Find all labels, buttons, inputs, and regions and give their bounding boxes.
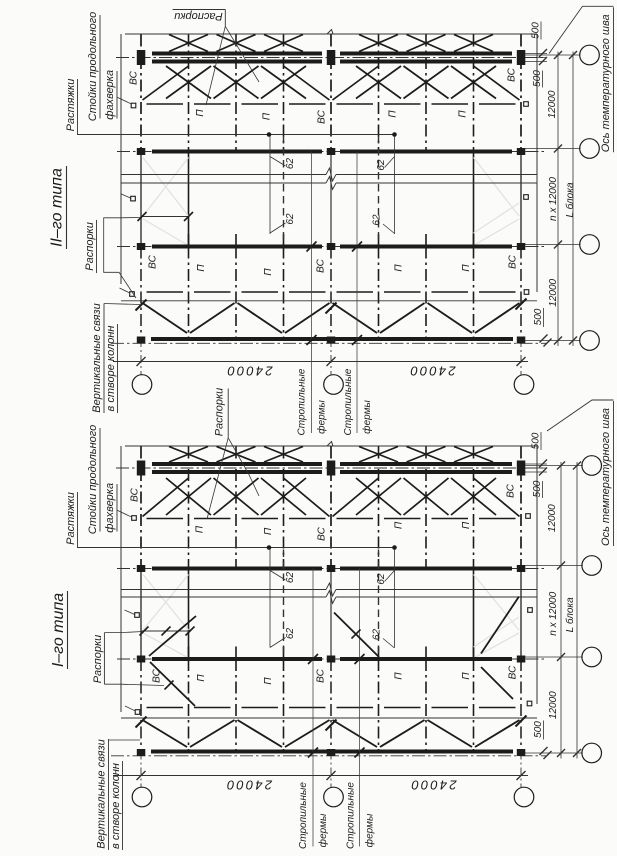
svg-text:ВС: ВС [506,67,517,81]
svg-text:ВС: ВС [316,526,327,540]
svg-text:62: 62 [371,214,382,226]
svg-text:Ось температурного шва: Ось температурного шва [600,14,612,152]
svg-text:Распорки: Распорки [174,10,223,22]
svg-text:ВС: ВС [316,109,327,123]
svg-text:24000: 24000 [225,364,273,379]
svg-text:12000: 12000 [547,504,558,532]
svg-text:Стойки продольного: Стойки продольного [87,12,99,121]
svg-text:Стойки продольного: Стойки продольного [87,425,99,534]
svg-text:Растяжки: Растяжки [65,79,77,132]
svg-text:фермы: фермы [317,813,329,847]
svg-text:62: 62 [371,629,382,641]
svg-text:12000: 12000 [548,278,559,306]
svg-text:П: П [261,112,272,120]
svg-text:фахверка: фахверка [104,483,116,533]
svg-text:500: 500 [533,308,544,325]
svg-text:Стропильные: Стропильные [296,368,307,435]
svg-text:n x 12000: n x 12000 [548,591,559,635]
svg-text:в створе колонн: в створе колонн [105,326,117,412]
svg-text:П: П [461,264,472,272]
svg-text:L блока: L блока [564,182,576,217]
svg-text:П: П [393,264,404,272]
svg-text:ВС: ВС [507,254,518,268]
svg-text:Стропильные: Стропильные [345,782,356,849]
svg-text:ВС: ВС [505,483,516,497]
svg-text:62: 62 [376,159,387,171]
svg-text:500: 500 [533,721,544,738]
svg-text:Распорки: Распорки [214,388,226,437]
svg-text:Распорки: Распорки [92,635,104,684]
svg-text:ВС: ВС [507,665,518,679]
svg-text:500: 500 [530,432,541,449]
svg-text:62: 62 [285,158,296,170]
svg-text:Растяжки: Растяжки [65,492,77,545]
svg-text:фермы: фермы [363,813,375,847]
svg-text:24000: 24000 [409,778,457,793]
svg-text:П: П [196,264,207,272]
svg-text:П: П [194,525,205,533]
svg-text:ВС: ВС [315,258,326,272]
svg-text:ВС: ВС [315,668,326,682]
svg-text:II–го типа: II–го типа [48,168,65,247]
svg-text:500: 500 [532,480,543,497]
svg-text:500: 500 [530,22,541,39]
svg-text:Вертикальные связи: Вертикальные связи [91,303,103,412]
svg-text:П: П [461,672,472,680]
svg-text:62: 62 [285,213,296,225]
svg-text:Ось температурного шва: Ось температурного шва [600,408,612,546]
svg-text:Вертикальные связи: Вертикальные связи [96,739,108,848]
svg-text:62: 62 [285,572,296,584]
svg-text:12000: 12000 [548,691,559,719]
svg-text:62: 62 [285,628,296,640]
svg-text:П: П [263,268,274,276]
svg-text:ВС: ВС [129,487,140,501]
svg-text:12000: 12000 [547,90,558,118]
svg-text:П: П [196,674,207,682]
svg-text:Стропильные: Стропильные [298,782,309,849]
svg-text:24000: 24000 [225,778,273,793]
svg-text:62: 62 [376,573,387,585]
svg-text:L блока: L блока [564,597,576,632]
svg-text:фахверка: фахверка [104,70,116,120]
svg-text:фермы: фермы [315,400,327,434]
svg-text:Стропильные: Стропильные [343,368,354,435]
svg-text:ВС: ВС [151,668,162,682]
svg-text:П: П [387,110,398,118]
svg-text:П: П [263,527,274,535]
svg-text:500: 500 [532,70,543,87]
svg-text:фермы: фермы [361,400,373,434]
svg-text:в створе колонн: в створе колонн [110,763,122,849]
svg-text:ВС: ВС [147,254,158,268]
svg-text:П: П [393,672,404,680]
svg-text:П: П [461,521,472,529]
svg-text:П: П [263,677,274,685]
svg-text:П: П [195,109,206,117]
svg-text:I–го типа: I–го типа [50,593,67,667]
svg-text:24000: 24000 [408,364,456,379]
svg-text:n x 12000: n x 12000 [548,177,559,221]
svg-text:Распорки: Распорки [84,222,96,271]
svg-text:П: П [393,521,404,529]
svg-text:ВС: ВС [128,70,139,84]
svg-text:П: П [457,110,468,118]
